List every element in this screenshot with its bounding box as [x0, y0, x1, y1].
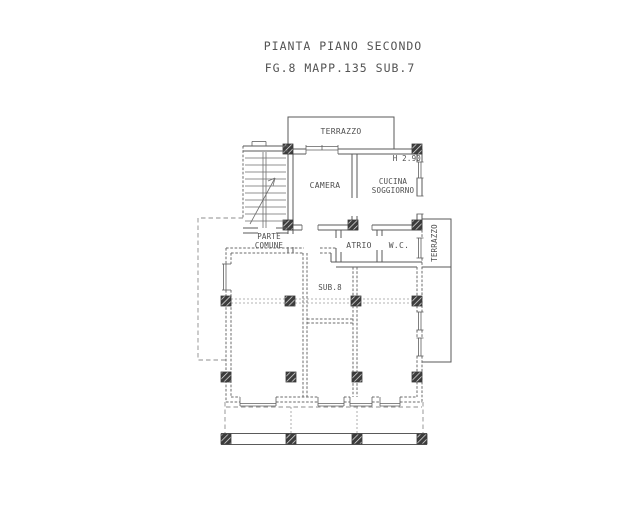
room-label-terrace-top: TERRAZZO — [321, 127, 362, 136]
column-marker — [412, 144, 422, 154]
window-symbol — [240, 397, 400, 406]
column-marker — [286, 372, 296, 382]
stair-treads — [245, 152, 286, 228]
title-line-2: FG.8 MAPP.135 SUB.7 — [265, 61, 416, 75]
terrace-top: TERRAZZO — [288, 117, 394, 149]
column-marker — [221, 296, 231, 306]
floor-plan-page: PIANTA PIANO SECONDO FG.8 MAPP.135 SUB.7… — [0, 0, 640, 511]
title-line-1: PIANTA PIANO SECONDO — [264, 39, 422, 53]
door-opening — [417, 196, 424, 214]
terrace-right: TERRAZZO — [422, 219, 451, 362]
column-marker — [285, 296, 295, 306]
room-label-common-2: COMUNE — [255, 241, 284, 250]
column-marker — [412, 220, 422, 230]
ceiling-height-note: H 2.90 — [393, 154, 422, 163]
lower-block-walls — [222, 230, 424, 406]
middle-band-labels: PARTE COMUNE ATRIO W.C. — [255, 232, 409, 250]
column-marker — [221, 372, 231, 382]
room-label-common-1: PARTE — [257, 232, 281, 241]
column-marker — [351, 296, 361, 306]
room-label-kitchen-2: SOGGIORNO — [372, 186, 415, 195]
window-symbol — [306, 145, 338, 154]
column-marker — [417, 434, 427, 444]
boundary-line — [198, 218, 243, 360]
floor-plan-drawing: PIANTA PIANO SECONDO FG.8 MAPP.135 SUB.7… — [0, 0, 640, 511]
room-label-wc: W.C. — [389, 241, 409, 250]
drawing-title: PIANTA PIANO SECONDO FG.8 MAPP.135 SUB.7 — [264, 39, 422, 75]
room-label-hall: ATRIO — [346, 241, 372, 250]
room-label-terrace-right: TERRAZZO — [430, 224, 439, 262]
stair-direction-arrow — [250, 178, 275, 224]
window-symbol — [222, 264, 231, 290]
column-marker — [412, 296, 422, 306]
room-label-kitchen-1: CUCINA — [379, 177, 408, 186]
room-label-bedroom: CAMERA — [310, 181, 341, 190]
lower-block-columns — [221, 296, 422, 382]
unit-label-sub8: SUB.8 — [318, 283, 342, 292]
column-marker — [352, 434, 362, 444]
column-marker — [412, 372, 422, 382]
column-marker — [348, 220, 358, 230]
upper-block-labels: CAMERA CUCINA SOGGIORNO H 2.90 — [310, 154, 422, 195]
column-marker — [286, 434, 296, 444]
window-symbol — [252, 142, 266, 147]
staircase — [243, 142, 288, 234]
column-marker — [221, 434, 231, 444]
balcony-bottom — [221, 402, 427, 445]
column-marker — [352, 372, 362, 382]
window-symbol — [417, 162, 424, 178]
